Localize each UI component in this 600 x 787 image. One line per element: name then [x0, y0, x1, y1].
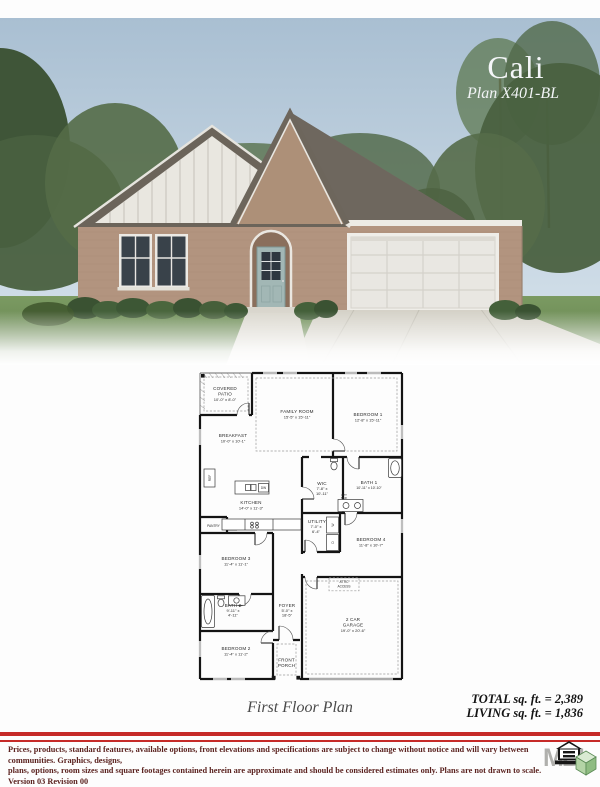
svg-text:10'-11": 10'-11" — [316, 491, 329, 496]
disclaimer-line1: Prices, products, standard features, ava… — [8, 745, 546, 766]
svg-text:PATIO: PATIO — [218, 392, 232, 397]
house-rendering: Cali Plan X401-BL — [0, 18, 600, 365]
label-bath1: BATH 1 — [361, 480, 378, 485]
toilet-bath1 — [331, 459, 338, 462]
floor-plan: COVERED PATIO 10'-0" x 8'-0" FAMILY ROOM… — [197, 369, 409, 685]
svg-text:14'-0" x 11'-3": 14'-0" x 11'-3" — [239, 506, 264, 511]
svg-text:19'-0" x 20'-6": 19'-0" x 20'-6" — [341, 628, 366, 633]
photo-bottom-fade — [0, 311, 600, 365]
svg-text:11'-8" x 10'-7": 11'-8" x 10'-7" — [359, 543, 384, 548]
label-bedroom2: BEDROOM 2 — [222, 646, 251, 651]
divider-line-thick — [0, 732, 600, 736]
floor-plan-drawing: COVERED PATIO 10'-0" x 8'-0" FAMILY ROOM… — [197, 369, 409, 685]
entry — [243, 231, 299, 313]
label-garage: 2 CAR — [346, 617, 361, 622]
label-bedroom1: BEDROOM 1 — [354, 412, 383, 417]
living-sqft: LIVING sq. ft. = 1,836 — [466, 706, 583, 720]
door-handle — [282, 280, 284, 282]
plan-code: Plan X401-BL — [466, 85, 559, 102]
label-covered-patio: COVERED — [213, 386, 237, 391]
disclaimer: Prices, products, standard features, ava… — [8, 745, 546, 787]
divider-line-thin — [0, 740, 600, 742]
svg-text:ACCESS: ACCESS — [337, 585, 350, 589]
svg-text:10'-0" x 8'-0": 10'-0" x 8'-0" — [214, 397, 237, 402]
builder-logo: MBI — [542, 737, 598, 777]
sqft-summary: TOTAL sq. ft. = 2,389 LIVING sq. ft. = 1… — [466, 692, 583, 720]
plan-title: Cali — [487, 49, 544, 85]
label-kitchen: KITCHEN — [240, 500, 261, 505]
svg-text:SINK: SINK — [341, 496, 348, 500]
toilet-bath2 — [218, 596, 225, 599]
svg-text:12'-8" x 15'-11": 12'-8" x 15'-11" — [355, 418, 382, 423]
label-breakfast: BREAKFAST — [219, 433, 247, 438]
label-dw: DW — [261, 486, 266, 490]
svg-text:15'-5" x 15'-11": 15'-5" x 15'-11" — [284, 415, 311, 420]
svg-text:GARAGE: GARAGE — [343, 623, 364, 628]
window-left — [118, 234, 154, 291]
svg-text:11'-4" x 11'-1": 11'-4" x 11'-1" — [224, 562, 249, 567]
svg-text:4'-11": 4'-11" — [228, 613, 238, 618]
label-family-room: FAMILY ROOM — [280, 409, 313, 414]
total-sqft: TOTAL sq. ft. = 2,389 — [466, 692, 583, 706]
garage-door — [347, 233, 499, 310]
label-pantry: PANTRY — [207, 524, 221, 528]
garage-door-opening — [309, 677, 393, 680]
svg-text:18'-5": 18'-5" — [282, 613, 293, 618]
label-bedroom3: BEDROOM 3 — [222, 556, 251, 561]
label-washer: W — [331, 523, 335, 526]
label-attic: ATTIC — [340, 580, 350, 584]
window-right — [154, 234, 190, 291]
svg-text:11'-4" x 11'-2": 11'-4" x 11'-2" — [224, 652, 249, 657]
label-bedroom4: BEDROOM 4 — [357, 537, 386, 542]
label-front-porch: FRONT — [278, 658, 295, 663]
vanity-bath1 — [338, 500, 363, 512]
svg-text:6'-4": 6'-4" — [312, 529, 321, 534]
kitchen-counter — [222, 519, 301, 530]
svg-text:PORCH: PORCH — [278, 663, 295, 668]
svg-text:10'-0" x 10'-1": 10'-0" x 10'-1" — [221, 439, 246, 444]
label-ref: REF — [208, 475, 212, 481]
svg-text:10'-11" x 10'-10": 10'-11" x 10'-10" — [356, 486, 382, 490]
house-photo: Cali Plan X401-BL — [0, 18, 600, 365]
tub-bath2 — [202, 596, 215, 628]
